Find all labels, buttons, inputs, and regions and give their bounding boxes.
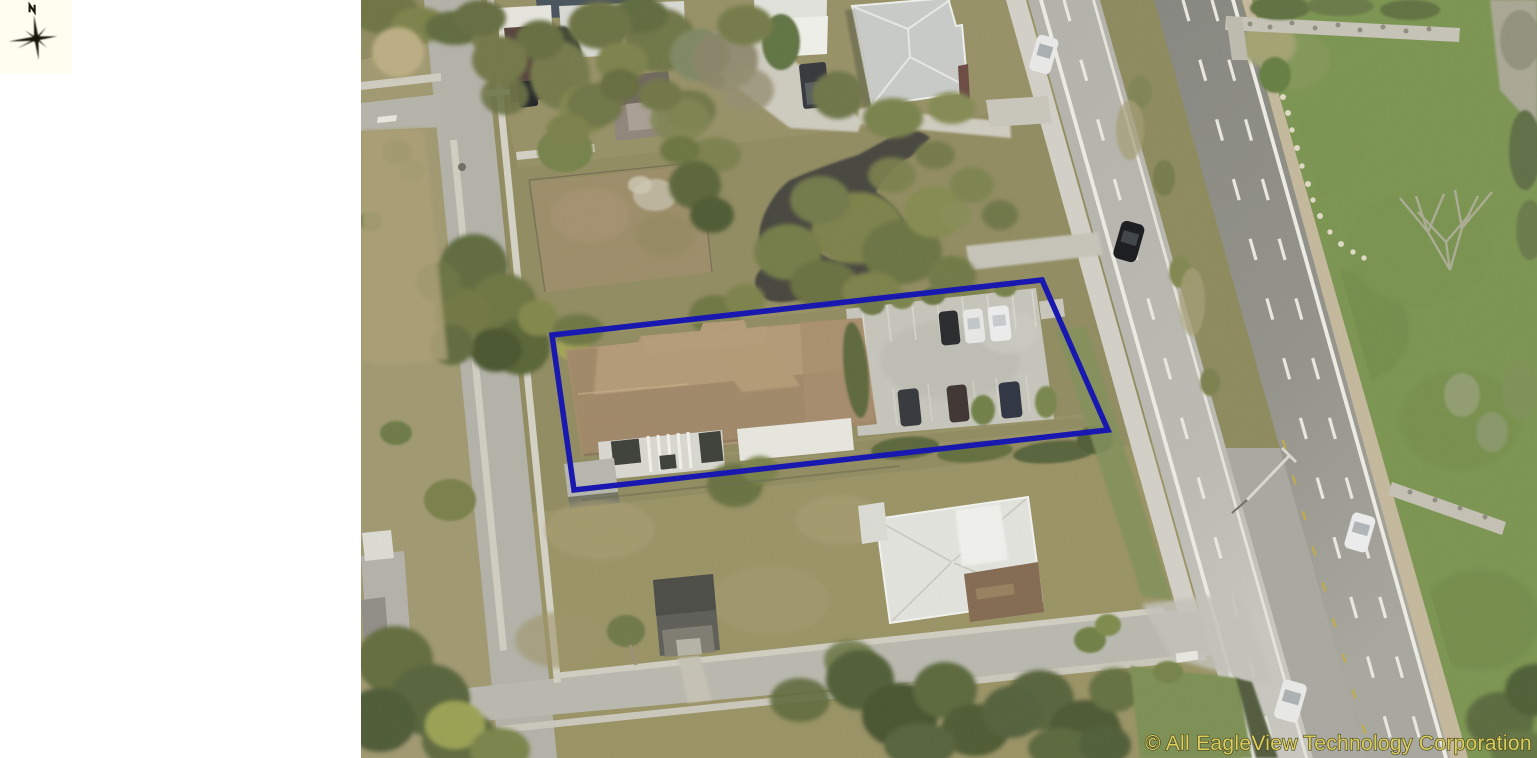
svg-text:© All EagleView Technology Cor: © All EagleView Technology Corporation — [1145, 732, 1532, 755]
